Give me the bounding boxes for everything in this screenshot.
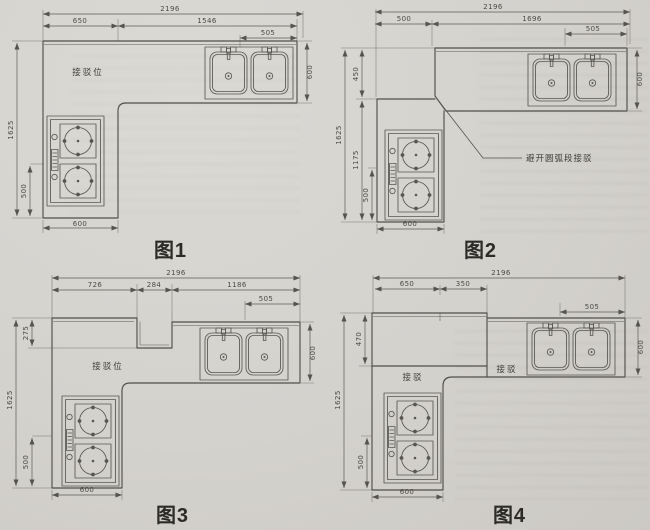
diagram-figure-3: 2196 726 284 1186 505 600 275 1625 500 6… <box>0 265 325 505</box>
leader-line <box>441 104 522 158</box>
figure-caption: 图1 <box>8 238 333 264</box>
dim-notch-depth: 275 <box>22 326 30 341</box>
figure-3: 2196 726 284 1186 505 600 275 1625 500 6… <box>0 265 325 530</box>
double-sink-symbol <box>527 323 615 375</box>
dimension-lines <box>16 278 310 495</box>
figure-caption: 图3 <box>10 503 335 529</box>
dim-top-right: 1186 <box>227 281 247 289</box>
figure-1: 2196 650 1546 505 600 1625 500 600 接驳位 图… <box>0 0 325 265</box>
dim-top-right: 1546 <box>197 17 217 25</box>
counter-outline <box>52 318 300 488</box>
dim-total-height: 1625 <box>334 390 342 409</box>
dim-leg-width: 600 <box>400 488 415 496</box>
stove-symbol <box>385 130 442 220</box>
dim-top-left: 650 <box>73 17 88 25</box>
stove-symbol <box>384 393 441 483</box>
dim-stove-bottom: 500 <box>20 184 28 199</box>
stove-symbol <box>47 116 104 206</box>
dim-counter-depth: 600 <box>637 340 645 355</box>
dim-total-width: 2196 <box>166 269 186 277</box>
dim-top-left: 726 <box>88 281 103 289</box>
dim-stove-bottom: 500 <box>357 455 365 470</box>
dim-counter-depth: 600 <box>309 346 317 361</box>
dim-stove-bottom: 500 <box>22 455 30 470</box>
label-connection-position: 接驳位 <box>92 361 124 372</box>
dim-total-width: 2196 <box>483 3 503 11</box>
diagram-figure-1: 2196 650 1546 505 600 1625 500 600 接驳位 <box>0 0 325 240</box>
dim-offset-top: 470 <box>355 332 363 347</box>
double-sink-symbol <box>528 54 616 106</box>
dim-total-height: 1625 <box>7 120 15 139</box>
figure-caption: 图2 <box>318 238 643 264</box>
dimension-lines <box>17 14 307 228</box>
figure-caption: 图4 <box>347 503 650 529</box>
figure-4: 2196 650 350 505 600 1625 470 500 600 接驳… <box>325 265 650 530</box>
dim-top-right: 1696 <box>522 15 542 23</box>
label-connection-position: 接驳位 <box>72 67 104 78</box>
dim-counter-depth: 600 <box>636 72 644 87</box>
dim-total-width: 2196 <box>491 269 511 277</box>
extension-lines <box>341 9 642 234</box>
label-connection-2: 接驳 <box>496 364 517 375</box>
dim-leg-width: 600 <box>73 220 88 228</box>
dim-leg-width: 600 <box>403 220 418 228</box>
dim-top-mid: 284 <box>147 281 162 289</box>
extension-lines <box>12 275 314 500</box>
label-connection: 接驳 <box>402 372 423 383</box>
dim-sink-width: 505 <box>261 29 276 37</box>
diagram-figure-2: 2196 500 1696 505 600 1625 450 1175 500 … <box>325 0 650 240</box>
extension-lines <box>12 10 312 233</box>
figure-2: 2196 500 1696 505 600 1625 450 1175 500 … <box>325 0 650 265</box>
dim-leg-width: 600 <box>80 486 95 494</box>
dim-counter-depth: 600 <box>306 65 314 80</box>
dim-total-width: 2196 <box>160 5 180 13</box>
dim-leg-height: 1175 <box>352 150 360 169</box>
dim-top-mid: 350 <box>456 280 471 288</box>
dim-total-height: 1625 <box>335 125 343 144</box>
dim-top-left: 650 <box>400 280 415 288</box>
double-sink-symbol <box>205 47 293 99</box>
scanned-page: 2196 650 1546 505 600 1625 500 600 接驳位 图… <box>0 0 650 530</box>
dim-top-left: 500 <box>397 15 412 23</box>
counter-outline <box>377 48 627 222</box>
label-avoid-arc-connection: 避开圆弧段接驳 <box>526 153 593 164</box>
dim-sink-width: 505 <box>586 25 601 33</box>
dim-stove-bottom: 500 <box>362 188 370 203</box>
dim-sink-width: 505 <box>259 295 274 303</box>
double-sink-symbol <box>200 328 288 380</box>
dim-sink-width: 505 <box>585 303 600 311</box>
diagram-figure-4: 2196 650 350 505 600 1625 470 500 600 接驳… <box>325 265 650 505</box>
dim-offset-top: 450 <box>352 67 360 82</box>
counter-outline <box>372 313 625 490</box>
dim-total-height: 1625 <box>6 390 14 409</box>
stove-symbol <box>62 396 119 486</box>
